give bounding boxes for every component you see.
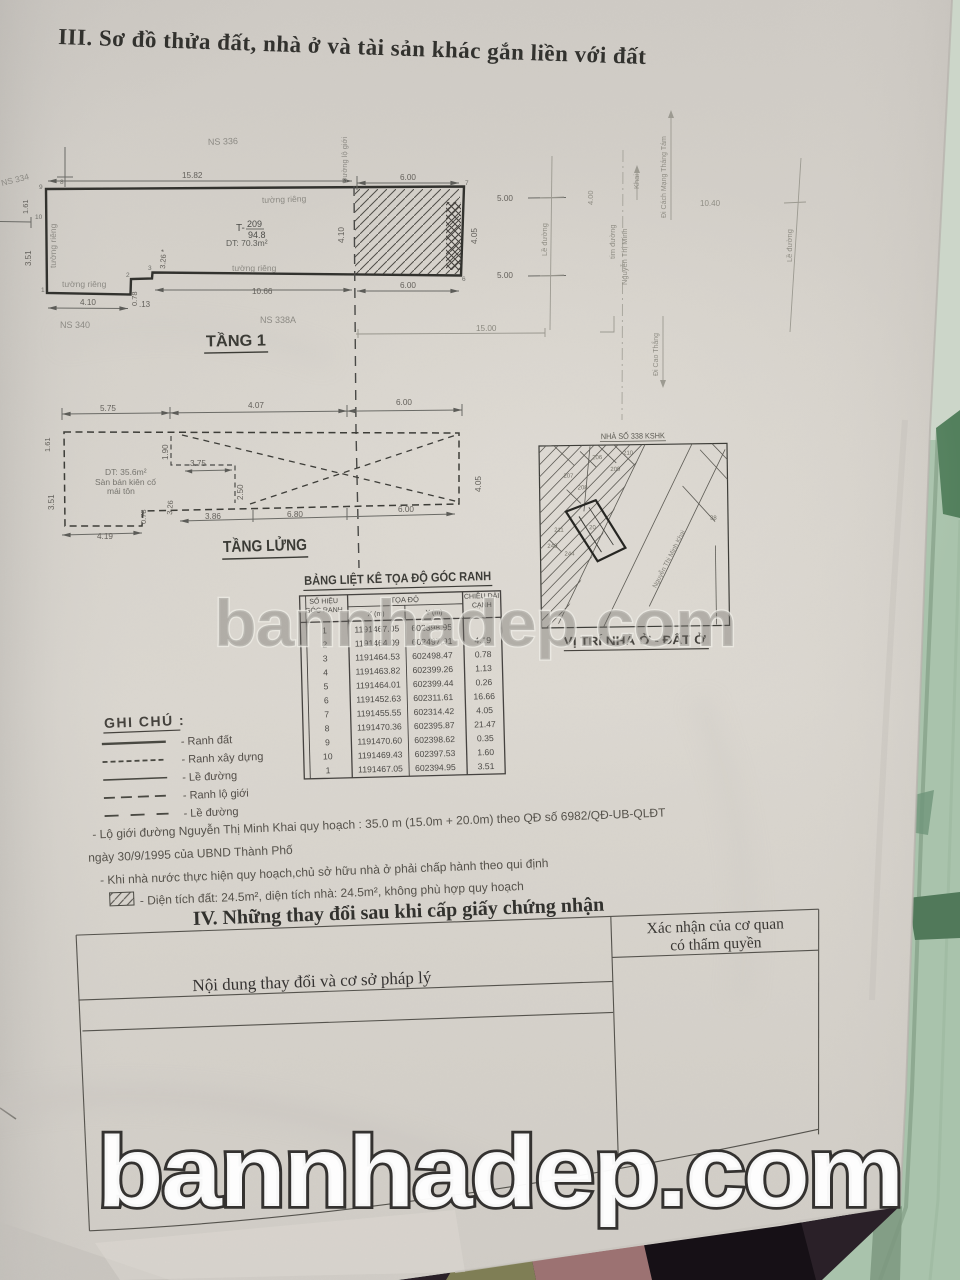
svg-text:4.05: 4.05 — [474, 476, 483, 492]
svg-text:4.05: 4.05 — [470, 228, 479, 244]
svg-text:15.00: 15.00 — [476, 324, 497, 333]
svg-text:209: 209 — [610, 467, 621, 473]
svg-text:8: 8 — [324, 723, 329, 733]
svg-text:Đi Cao Thắng: Đi Cao Thắng — [651, 333, 660, 376]
svg-text:tường riêng: tường riêng — [262, 193, 307, 205]
svg-text:6: 6 — [462, 276, 466, 283]
svg-text:2.50: 2.50 — [236, 484, 245, 500]
svg-text:3.26 *: 3.26 * — [158, 249, 168, 269]
svg-text:Lề đường: Lề đường — [540, 223, 549, 256]
svg-text:602399.44: 602399.44 — [413, 678, 454, 689]
svg-text:602394.95: 602394.95 — [415, 762, 456, 773]
svg-text:.13: .13 — [139, 300, 151, 309]
svg-text:NHÀ SỐ 338 KSHK: NHÀ SỐ 338 KSHK — [601, 430, 666, 441]
svg-text:602311.61: 602311.61 — [413, 692, 453, 703]
svg-text:602397.53: 602397.53 — [415, 748, 456, 759]
svg-text:5: 5 — [323, 681, 328, 691]
svg-text:6.00: 6.00 — [396, 398, 412, 407]
svg-text:4.10: 4.10 — [80, 298, 96, 307]
svg-text:4.07: 4.07 — [248, 401, 264, 410]
svg-text:10.40: 10.40 — [700, 199, 721, 208]
svg-text:4.00: 4.00 — [586, 190, 595, 205]
svg-text:1191464.01: 1191464.01 — [356, 679, 401, 690]
svg-text:5.00: 5.00 — [497, 271, 513, 280]
svg-text:1.61: 1.61 — [21, 199, 30, 214]
svg-text:38: 38 — [710, 516, 717, 522]
svg-text:3.51: 3.51 — [47, 494, 56, 510]
svg-text:3.51: 3.51 — [478, 761, 495, 771]
svg-text:244: 244 — [564, 552, 575, 558]
svg-text:Lề đường: Lề đường — [785, 229, 794, 262]
svg-text:NS 340: NS 340 — [60, 320, 90, 330]
svg-text:20: 20 — [589, 525, 596, 531]
svg-text:Đi Cách Mạng Tháng Tám: Đi Cách Mạng Tháng Tám — [661, 136, 668, 218]
svg-text:tường riêng: tường riêng — [48, 223, 58, 268]
svg-text:có thẩm quyền: có thẩm quyền — [670, 934, 762, 954]
svg-text:0.78: 0.78 — [130, 291, 139, 306]
svg-text:GHI CHÚ :: GHI CHÚ : — [104, 711, 186, 731]
svg-text:1191470.36: 1191470.36 — [357, 721, 402, 732]
svg-text:5.75: 5.75 — [100, 404, 116, 413]
svg-text:3: 3 — [148, 265, 152, 272]
svg-text:1191467.05: 1191467.05 — [358, 763, 403, 774]
svg-text:1191463.82: 1191463.82 — [355, 665, 400, 676]
svg-text:3.51: 3.51 — [24, 250, 33, 266]
svg-text:6: 6 — [324, 695, 329, 705]
svg-text:- Lề đường: - Lề đường — [183, 806, 238, 820]
svg-text:6.00: 6.00 — [398, 505, 414, 514]
svg-text:1191452.63: 1191452.63 — [356, 693, 401, 704]
svg-text:tường riêng: tường riêng — [232, 263, 277, 273]
svg-text:tim đường: tim đường — [608, 224, 617, 259]
svg-text:- Lề đường: - Lề đường — [182, 770, 237, 784]
svg-text:NS 336: NS 336 — [208, 136, 238, 147]
svg-text:3.86: 3.86 — [205, 512, 221, 521]
svg-text:1191469.43: 1191469.43 — [358, 749, 403, 760]
svg-text:15.82: 15.82 — [182, 171, 203, 180]
svg-text:bannhadep.com: bannhadep.com — [97, 1116, 902, 1228]
svg-text:DT: 70.3m²: DT: 70.3m² — [226, 238, 268, 248]
svg-text:9: 9 — [39, 184, 43, 191]
svg-text:Nguyễn Thị Minh: Nguyễn Thị Minh — [620, 228, 629, 285]
svg-text:8: 8 — [60, 179, 64, 186]
svg-text:mái tôn: mái tôn — [107, 486, 135, 496]
svg-text:4.05: 4.05 — [476, 705, 493, 715]
svg-text:10: 10 — [323, 751, 333, 761]
svg-text:tường riêng: tường riêng — [62, 279, 107, 289]
svg-text:- Ranh đất: - Ranh đất — [181, 734, 233, 748]
svg-text:DT: 35.6m²: DT: 35.6m² — [105, 467, 147, 477]
svg-text:1: 1 — [41, 287, 45, 294]
svg-text:Khai: Khai — [632, 174, 641, 189]
svg-text:1.60: 1.60 — [477, 747, 494, 757]
svg-text:211: 211 — [554, 528, 564, 534]
svg-text:208: 208 — [578, 485, 589, 491]
svg-text:602314.42: 602314.42 — [413, 706, 454, 717]
svg-text:4.10: 4.10 — [337, 227, 346, 243]
svg-text:206: 206 — [592, 455, 603, 461]
svg-text:1191470.60: 1191470.60 — [357, 735, 402, 746]
svg-text:10.66: 10.66 — [252, 287, 273, 296]
svg-text:2: 2 — [126, 272, 130, 279]
svg-text:16.66: 16.66 — [473, 691, 495, 702]
svg-text:TẦNG 1: TẦNG 1 — [206, 330, 266, 350]
svg-text:4.19: 4.19 — [97, 532, 113, 541]
svg-text:1.13: 1.13 — [475, 663, 492, 673]
svg-text:9: 9 — [325, 737, 330, 747]
svg-text:4: 4 — [323, 667, 328, 677]
svg-text:0.26: 0.26 — [475, 677, 492, 687]
svg-text:207: 207 — [563, 474, 574, 480]
svg-text:249: 249 — [547, 544, 558, 550]
svg-text:6.00: 6.00 — [400, 173, 416, 182]
svg-text:21.47: 21.47 — [474, 719, 496, 730]
svg-text:7: 7 — [465, 180, 469, 187]
svg-text:0.35: 0.35 — [477, 733, 494, 743]
svg-text:0.78: 0.78 — [139, 509, 148, 524]
svg-text:1: 1 — [326, 765, 331, 775]
svg-text:6.00: 6.00 — [400, 281, 416, 290]
svg-text:602398.62: 602398.62 — [414, 734, 455, 745]
svg-text:TẦNG LỬNG: TẦNG LỬNG — [223, 535, 307, 556]
svg-text:209: 209 — [247, 219, 262, 229]
svg-text:10: 10 — [35, 214, 43, 221]
svg-text:210: 210 — [623, 451, 634, 457]
svg-text:602395.87: 602395.87 — [414, 720, 455, 731]
svg-text:- Ranh lộ giới: - Ranh lộ giới — [183, 787, 249, 802]
svg-text:602399.26: 602399.26 — [412, 664, 453, 675]
svg-text:1.61: 1.61 — [43, 437, 52, 452]
svg-text:3.75: 3.75 — [190, 459, 206, 468]
svg-text:NS 338A: NS 338A — [260, 315, 296, 325]
svg-text:1191455.55: 1191455.55 — [357, 707, 402, 718]
svg-text:6.80: 6.80 — [287, 510, 303, 519]
svg-text:T-: T- — [236, 223, 245, 234]
svg-text:bannhadep.com: bannhadep.com — [214, 586, 736, 660]
svg-text:5.00: 5.00 — [497, 194, 513, 203]
svg-text:Đường lộ giới: Đường lộ giới — [340, 137, 349, 183]
svg-text:3.26: 3.26 — [165, 500, 175, 515]
svg-text:7: 7 — [324, 709, 329, 719]
svg-text:1.90: 1.90 — [161, 444, 170, 460]
